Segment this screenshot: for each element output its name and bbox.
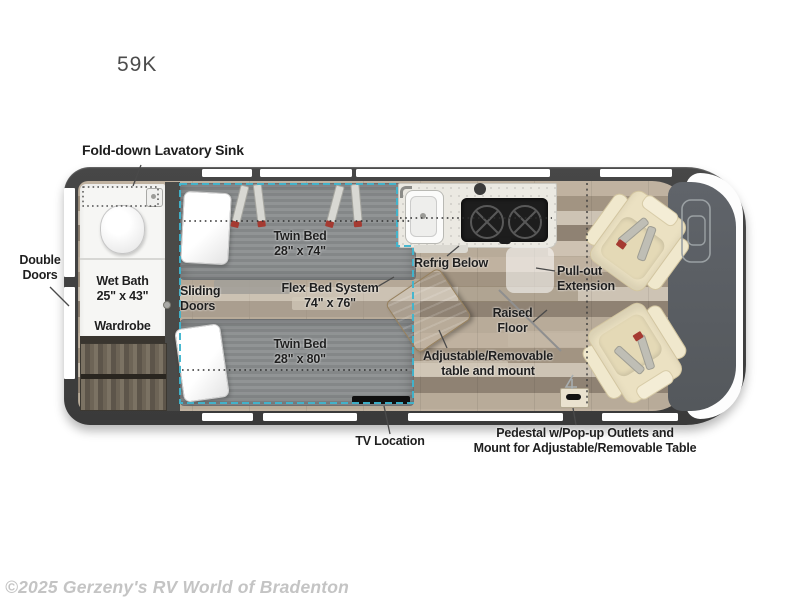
label-twin-bed-top: Twin Bed 28" x 74" <box>230 229 370 258</box>
label-twin-bed-bottom: Twin Bed 28" x 80" <box>230 337 370 366</box>
dealer-watermark: ©2025 Gerzeny's RV World of Bradenton <box>5 577 349 598</box>
pull-out-extension-area <box>506 247 554 293</box>
window <box>202 169 252 177</box>
window <box>356 169 550 177</box>
label-refrig-below: Refrig Below <box>395 256 507 271</box>
floorplan-page: 59K <box>0 0 800 600</box>
window <box>263 413 357 421</box>
label-raised-floor: Raised Floor <box>470 306 555 335</box>
pedestal-slot <box>566 394 581 400</box>
window <box>202 413 253 421</box>
label-tv-location: TV Location <box>330 434 450 449</box>
tv-location-bar <box>352 396 410 404</box>
wardrobe-cabinet <box>80 343 167 411</box>
window <box>600 169 672 177</box>
label-sliding-doors: Sliding Doors <box>180 284 220 313</box>
refrigerator-below-tab <box>414 245 468 253</box>
window <box>408 413 563 421</box>
label-wet-bath: Wet Bath 25" x 43" <box>80 274 165 303</box>
kitchen-sink-icon <box>405 190 444 244</box>
pillow-icon <box>180 191 232 265</box>
stove-icon <box>461 198 548 242</box>
sink-drain <box>420 213 426 219</box>
label-pedestal: Pedestal w/Pop-up Outlets and Mount for … <box>445 426 725 455</box>
label-wardrobe: Wardrobe <box>80 319 165 334</box>
window <box>602 413 678 421</box>
wardrobe-rod <box>81 374 166 379</box>
label-double-doors: Double Doors <box>14 253 66 282</box>
pedestal-outlet-icon <box>560 388 589 408</box>
label-pull-out-extension: Pull-out Extension <box>557 264 615 293</box>
wet-bath-divider <box>80 258 165 260</box>
toilet-icon <box>100 205 145 254</box>
counter-knob-icon <box>474 183 486 195</box>
fold-down-sink-icon <box>146 188 163 207</box>
wardrobe-top-shelf <box>80 336 165 343</box>
floorplan-model-title: 59K <box>117 53 157 77</box>
interior-wall <box>165 182 180 411</box>
label-adjustable-table: Adjustable/Removable table and mount <box>418 349 558 378</box>
stove-notch <box>499 238 511 244</box>
window <box>260 169 352 177</box>
rear-door-panel <box>64 287 75 379</box>
label-fold-down-sink: Fold-down Lavatory Sink <box>82 142 244 158</box>
label-flex-bed-system: Flex Bed System 74" x 76" <box>260 281 400 310</box>
